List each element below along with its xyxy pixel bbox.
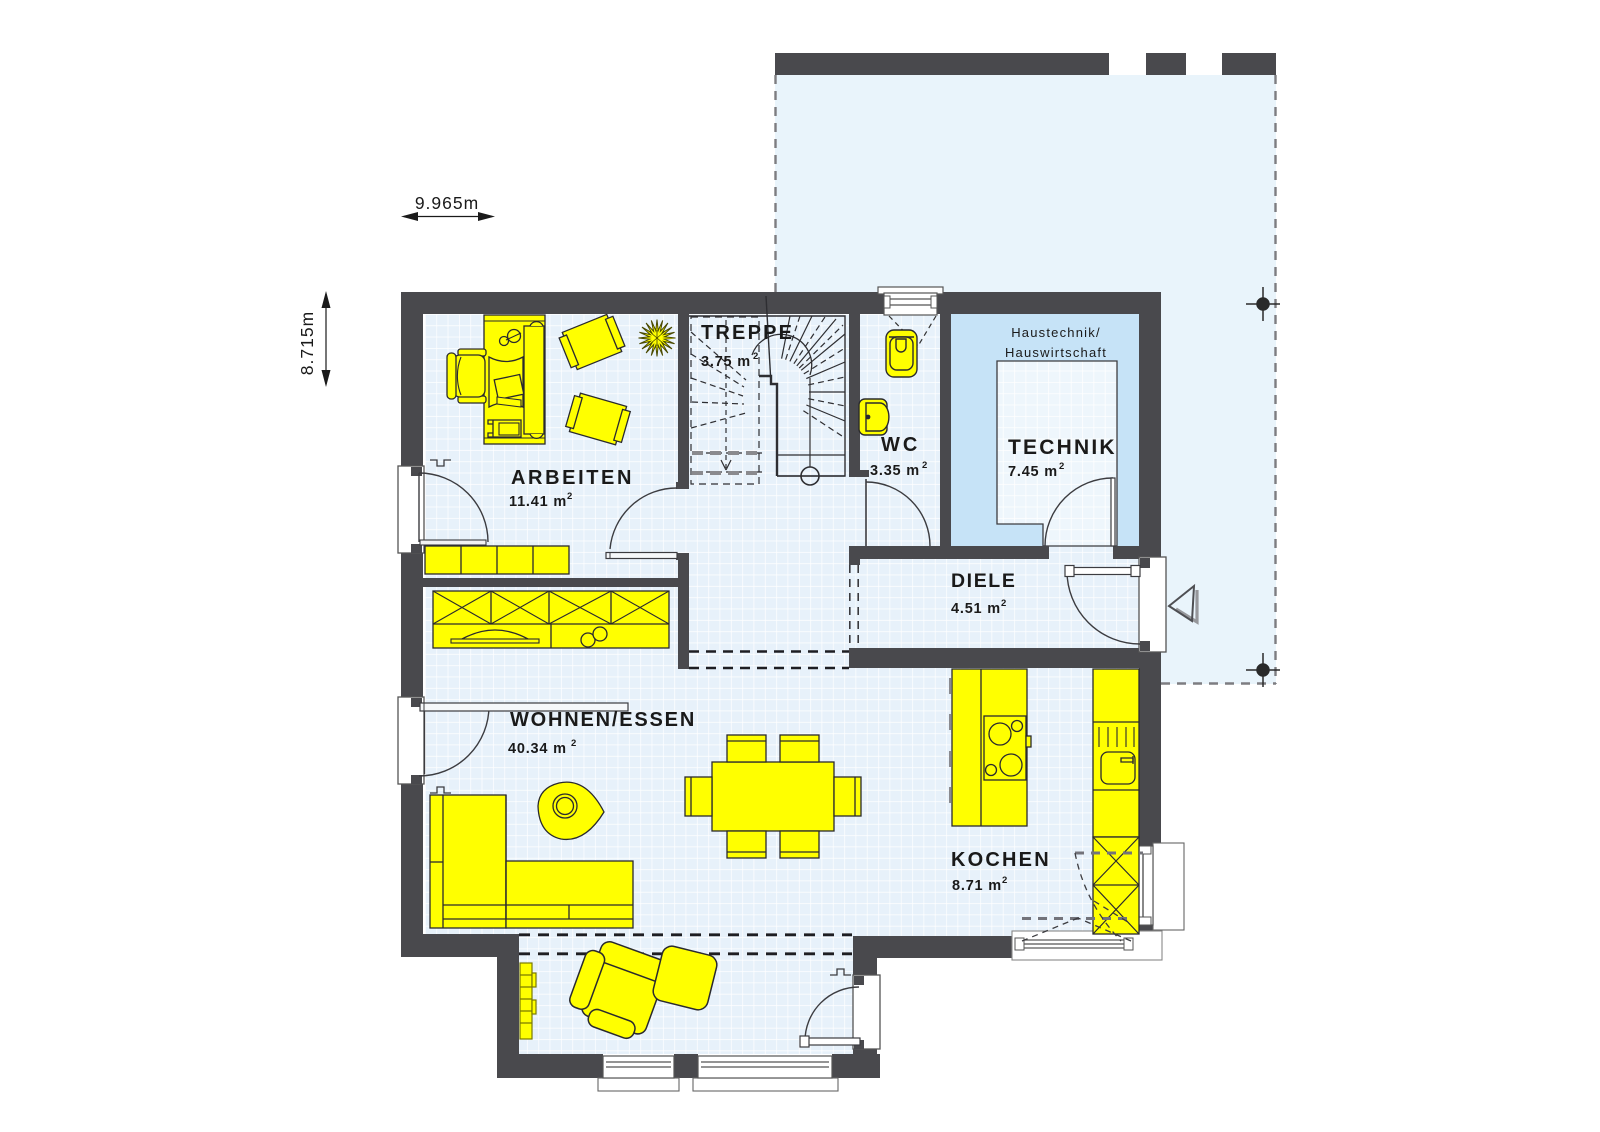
svg-text:9.965m: 9.965m [415,193,479,213]
svg-text:ARBEITEN: ARBEITEN [511,467,634,489]
svg-text:8.715m: 8.715m [297,311,317,375]
svg-text:Hauswirtschaft: Hauswirtschaft [1005,345,1107,360]
svg-text:3.35 m: 3.35 m [870,463,920,479]
svg-text:2: 2 [1059,461,1064,472]
svg-text:2: 2 [1002,875,1007,886]
svg-text:2: 2 [1001,598,1006,609]
svg-text:TECHNIK: TECHNIK [1008,436,1117,459]
svg-text:11.41 m: 11.41 m [509,494,567,510]
svg-text:2: 2 [571,738,576,749]
svg-text:8.71 m: 8.71 m [952,878,1002,894]
svg-text:KOCHEN: KOCHEN [951,849,1051,871]
svg-text:4.51 m: 4.51 m [951,601,1001,617]
svg-text:2: 2 [753,351,758,362]
svg-text:DIELE: DIELE [951,570,1016,592]
svg-text:WC: WC [881,434,920,456]
svg-text:Haustechnik/: Haustechnik/ [1011,325,1101,340]
svg-text:TREPPE: TREPPE [701,322,794,344]
svg-text:WOHNEN/ESSEN: WOHNEN/ESSEN [510,709,696,731]
svg-text:7.45 m: 7.45 m [1008,464,1058,480]
svg-text:2: 2 [567,491,572,502]
svg-text:3.75 m: 3.75 m [701,354,751,370]
svg-text:40.34 m: 40.34 m [508,741,567,757]
svg-text:2: 2 [922,460,927,471]
